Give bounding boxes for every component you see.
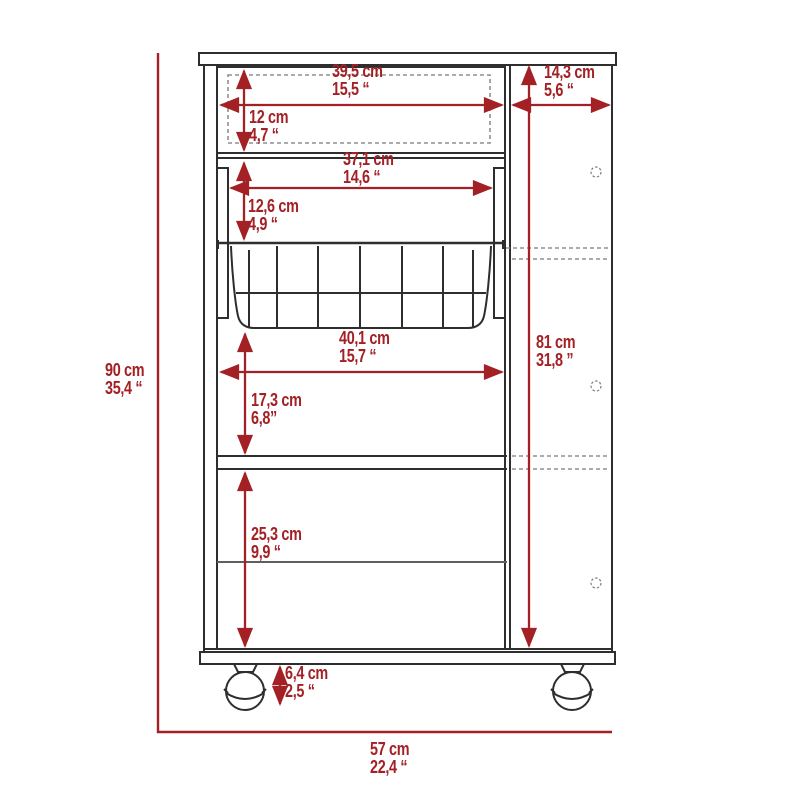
basket-hidden-lines xyxy=(506,248,610,259)
dimension-lines xyxy=(221,67,609,704)
caster-left xyxy=(224,664,266,710)
middle-shelf xyxy=(217,456,507,469)
dim-drawer-width-label: 39,5 cm15,5 “ xyxy=(332,62,383,98)
dim-drawer-inner-width-label: 37,1 cm14,6 “ xyxy=(343,150,394,186)
dim-side-panel-height-label: 81 cm31,8 ” xyxy=(536,333,575,369)
dim-overall-height-label: 90 cm35,4 “ xyxy=(105,361,144,397)
dim-overall-width-label: 57 cm22,4 “ xyxy=(370,740,409,776)
dim-caster-height-label: 6,4 cm2,5 “ xyxy=(285,664,328,700)
dim-lower-compartment-height-label: 25,3 cm9,9 “ xyxy=(251,525,302,561)
dim-drawer-height-label: 12 cm4,7 “ xyxy=(249,108,288,144)
technical-drawing-canvas: 39,5 cm15,5 “ 14,3 cm5,6 “ 12 cm4,7 “ 37… xyxy=(0,0,800,800)
wire-basket xyxy=(218,240,503,328)
dim-basket-width-label: 40,1 cm15,7 “ xyxy=(339,329,390,365)
caster-right xyxy=(551,664,593,710)
dim-basket-section-height-label: 12,6 cm4,9 “ xyxy=(248,197,299,233)
shelf-hidden-lines xyxy=(512,456,610,469)
cabinet-line-art xyxy=(0,0,800,800)
dim-right-panel-depth-label: 14,3 cm5,6 “ xyxy=(544,63,595,99)
shelf-pin-holes xyxy=(591,167,601,588)
dim-middle-shelf-height-label: 17,3 cm6,8” xyxy=(251,391,302,427)
base-panel xyxy=(200,652,615,664)
